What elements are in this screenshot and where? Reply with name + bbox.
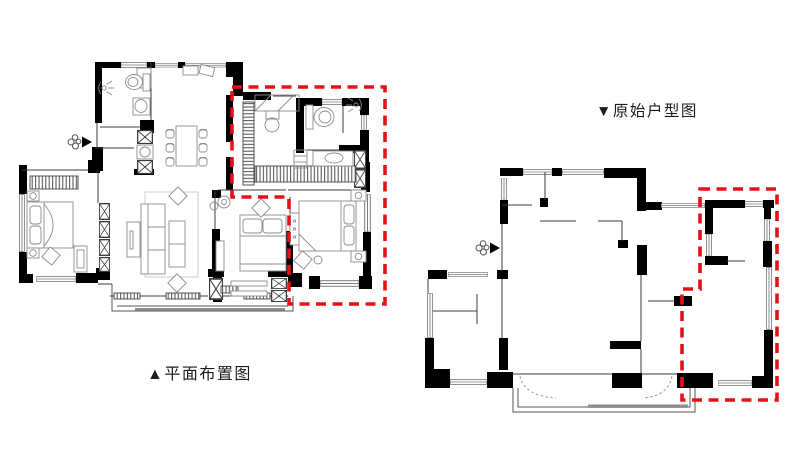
tv-console [127, 222, 140, 257]
bedroom-middle [216, 196, 286, 271]
furniture-layout-plan [19, 62, 385, 311]
living-room [127, 187, 218, 292]
caption-furniture-layout: ▲平面布置图 [147, 360, 252, 384]
original-floor-plan [425, 168, 777, 412]
renovation-highlight-outline-right [682, 189, 777, 400]
bedroom-left [27, 191, 87, 272]
sofa [141, 204, 165, 274]
floor-plan-page: ▲平面布置图 ▼原始户型图 [0, 0, 800, 449]
dining-table [176, 126, 197, 166]
bathroom-top-left [99, 74, 150, 115]
door-arcs [520, 376, 672, 398]
balcony [513, 388, 695, 412]
bathroom-top-right [306, 98, 361, 166]
bedroom-right [290, 190, 366, 269]
entry-marker-icon [68, 135, 92, 149]
caption-original-plan: ▼原始户型图 [596, 99, 698, 121]
floor-plans-canvas [0, 0, 800, 449]
north-marker-icon [476, 241, 500, 255]
walls [425, 168, 774, 388]
